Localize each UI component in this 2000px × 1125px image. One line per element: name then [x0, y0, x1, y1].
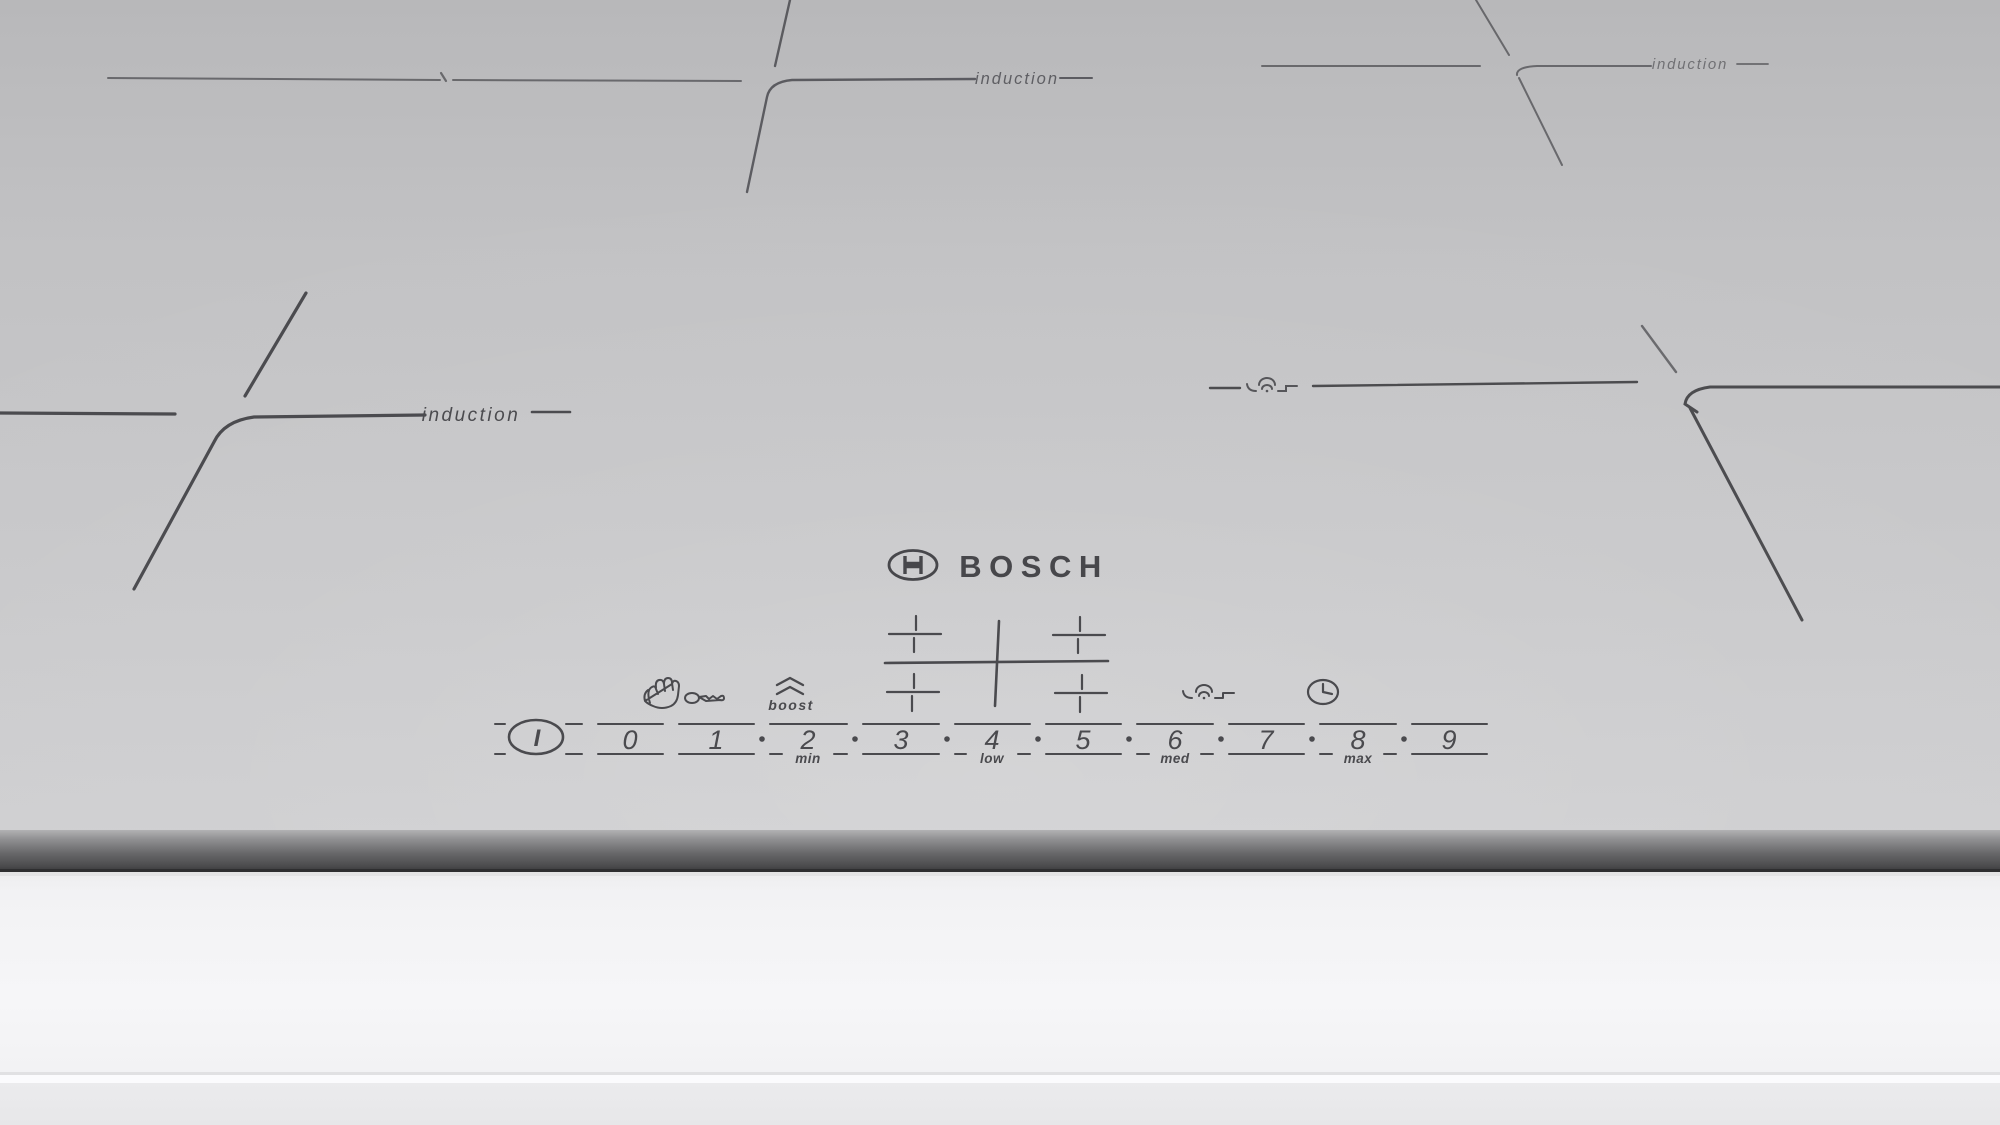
level-key-7[interactable]: 7	[1258, 725, 1274, 755]
panel-seam-shadow	[0, 1072, 2000, 1075]
level-key-5[interactable]: 5	[1075, 725, 1091, 755]
half-step-dot	[852, 736, 858, 742]
scale-label-min: min	[795, 751, 821, 766]
hob-front-edge	[0, 830, 2000, 872]
front-edge-shadow-line	[0, 869, 2000, 872]
brand-wordmark: BOSCH	[959, 549, 1108, 584]
half-step-dot	[944, 736, 950, 742]
panel-top-shadow	[0, 872, 2000, 876]
scale-label-max: max	[1344, 751, 1373, 766]
half-step-dot	[1126, 736, 1132, 742]
zone-label-back-center: induction	[975, 70, 1059, 88]
cabinet-front	[0, 872, 2000, 1125]
panel-seam-highlight	[0, 1075, 2000, 1083]
level-key-9[interactable]: 9	[1441, 725, 1456, 755]
half-step-dot	[759, 736, 765, 742]
hob-scene: induction induction induction	[0, 0, 2000, 1125]
half-step-dot	[1401, 736, 1407, 742]
half-step-dot	[1309, 736, 1315, 742]
scale-label-med: med	[1160, 751, 1190, 766]
level-key-1[interactable]: 1	[708, 725, 723, 755]
level-key-0[interactable]: 0	[622, 725, 637, 755]
half-step-dot	[1218, 736, 1224, 742]
front-edge-band	[0, 830, 2000, 872]
cabinet-panel-lower	[0, 1083, 2000, 1125]
zone-label-front-left: induction	[422, 405, 521, 426]
scale-label-low: low	[980, 751, 1005, 766]
level-key-3[interactable]: 3	[893, 725, 908, 755]
zone-label-back-right: induction	[1652, 56, 1728, 73]
bosch-induction-hob-photo: induction induction induction	[0, 0, 2000, 1125]
half-step-dot	[1035, 736, 1041, 742]
boost-label: boost	[768, 697, 814, 713]
